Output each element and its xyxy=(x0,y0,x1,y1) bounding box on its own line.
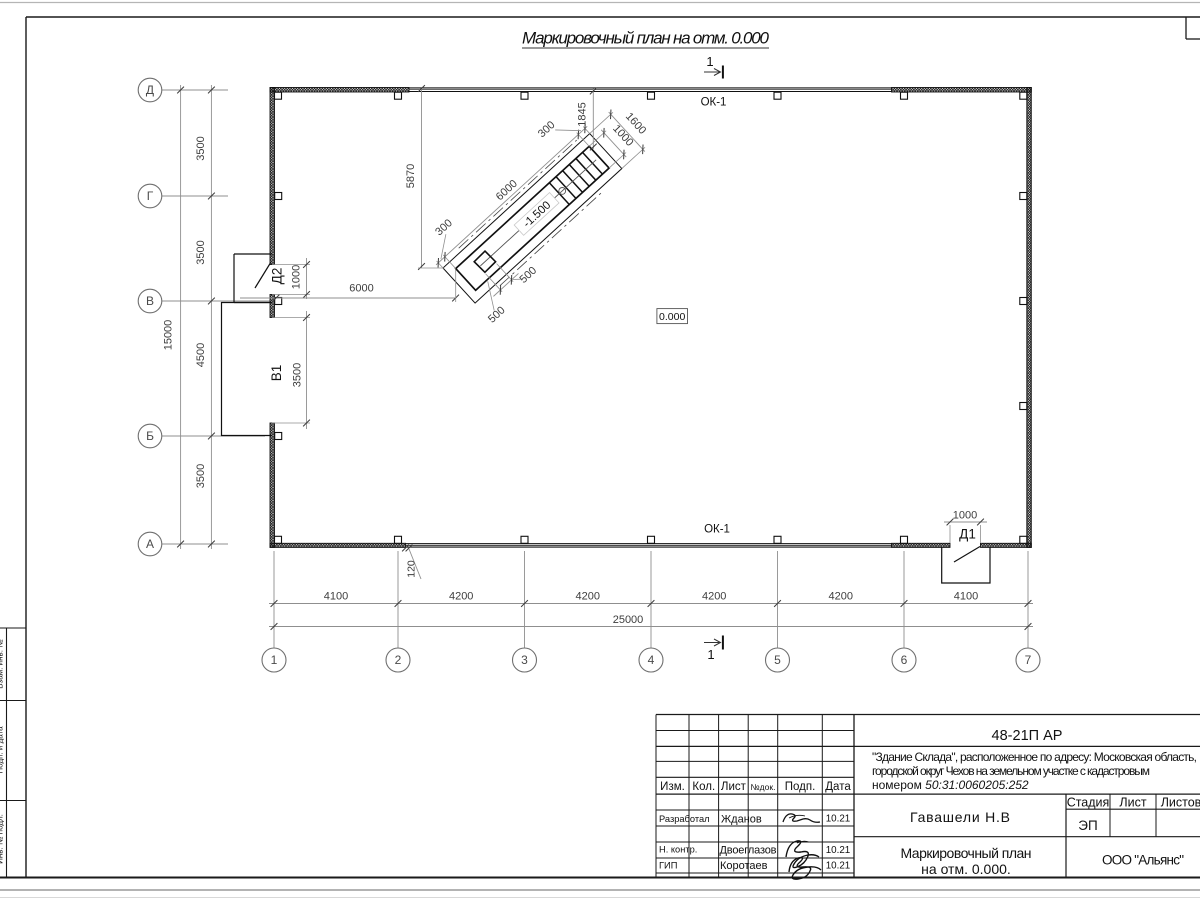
svg-text:№док.: №док. xyxy=(751,782,776,792)
svg-text:Разработал: Разработал xyxy=(659,814,710,824)
svg-text:1: 1 xyxy=(706,54,713,69)
svg-text:10.21: 10.21 xyxy=(826,845,851,856)
svg-text:Г: Г xyxy=(147,189,154,203)
svg-text:В1: В1 xyxy=(269,365,284,382)
svg-text:25000: 25000 xyxy=(613,614,644,626)
svg-text:3500: 3500 xyxy=(195,240,207,264)
svg-text:Б: Б xyxy=(146,429,154,443)
svg-text:Подп.: Подп. xyxy=(785,781,816,793)
svg-text:1: 1 xyxy=(271,653,278,667)
svg-text:10.21: 10.21 xyxy=(826,814,851,825)
svg-text:ОК-1: ОК-1 xyxy=(704,524,730,536)
svg-text:Подп. и дата: Подп. и дата xyxy=(0,726,5,774)
svg-text:Двоеглазов: Двоеглазов xyxy=(720,845,777,857)
svg-text:ГИП: ГИП xyxy=(659,861,677,871)
svg-text:120: 120 xyxy=(406,560,418,578)
svg-text:4200: 4200 xyxy=(702,591,726,603)
svg-text:6000: 6000 xyxy=(349,283,373,295)
svg-text:10.21: 10.21 xyxy=(826,861,851,872)
svg-text:номером 50:31:0060205:252: номером 50:31:0060205:252 xyxy=(872,778,1029,792)
svg-text:3500: 3500 xyxy=(195,136,207,160)
svg-text:7: 7 xyxy=(1025,653,1032,667)
svg-text:Д2: Д2 xyxy=(270,268,285,285)
svg-text:5870: 5870 xyxy=(405,164,417,188)
svg-text:4: 4 xyxy=(648,653,655,667)
svg-text:Жданов: Жданов xyxy=(721,814,762,826)
svg-text:Кол.: Кол. xyxy=(692,781,715,793)
svg-text:на отм. 0.000.: на отм. 0.000. xyxy=(921,861,1011,877)
svg-text:Лист: Лист xyxy=(1119,796,1146,810)
svg-text:Д: Д xyxy=(146,83,154,97)
svg-text:Маркировочный план на отм. 0.0: Маркировочный план на отм. 0.000 xyxy=(522,29,770,48)
svg-text:Н. контр.: Н. контр. xyxy=(659,845,697,855)
svg-text:1: 1 xyxy=(707,647,714,662)
svg-text:3500: 3500 xyxy=(195,464,207,488)
svg-text:3500: 3500 xyxy=(292,363,304,387)
svg-text:4100: 4100 xyxy=(324,591,348,603)
svg-text:48-21П АР: 48-21П АР xyxy=(992,728,1063,744)
svg-text:"Здание Склада", расположенное: "Здание Склада", расположенное по адресу… xyxy=(872,750,1197,764)
svg-text:ООО "Альянс": ООО "Альянс" xyxy=(1102,853,1184,868)
svg-text:А: А xyxy=(146,537,154,551)
svg-text:3: 3 xyxy=(521,653,528,667)
svg-text:Гавашели Н.В: Гавашели Н.В xyxy=(910,809,1010,825)
svg-text:1000: 1000 xyxy=(953,510,977,522)
svg-text:4200: 4200 xyxy=(576,591,600,603)
svg-text:4500: 4500 xyxy=(195,343,207,367)
svg-text:2: 2 xyxy=(395,653,402,667)
svg-text:Инв. № подл.: Инв. № подл. xyxy=(0,814,5,864)
svg-text:Маркировочный план: Маркировочный план xyxy=(901,845,1032,861)
svg-text:Стадия: Стадия xyxy=(1067,796,1110,810)
svg-text:6: 6 xyxy=(901,653,908,667)
svg-text:1000: 1000 xyxy=(291,265,303,289)
svg-text:ЭП: ЭП xyxy=(1078,818,1097,833)
svg-text:Листов: Листов xyxy=(1161,796,1200,810)
svg-text:ОК-1: ОК-1 xyxy=(701,97,727,109)
svg-text:5: 5 xyxy=(774,653,781,667)
svg-text:0.000: 0.000 xyxy=(659,311,685,323)
svg-text:Дата: Дата xyxy=(825,781,851,793)
svg-text:Коротаев: Коротаев xyxy=(720,860,768,872)
svg-text:Взам. инв. №: Взам. инв. № xyxy=(0,639,5,689)
svg-text:4200: 4200 xyxy=(829,591,853,603)
svg-text:городской округ Чехов на земел: городской округ Чехов на земельном участ… xyxy=(872,764,1150,778)
svg-text:В: В xyxy=(146,294,154,308)
svg-text:Д1: Д1 xyxy=(959,527,976,542)
svg-text:Изм.: Изм. xyxy=(660,781,685,793)
svg-text:15000: 15000 xyxy=(163,320,175,351)
svg-text:1845: 1845 xyxy=(577,102,589,126)
svg-text:Лист: Лист xyxy=(721,781,747,793)
svg-text:4200: 4200 xyxy=(449,591,473,603)
svg-text:4100: 4100 xyxy=(954,591,978,603)
